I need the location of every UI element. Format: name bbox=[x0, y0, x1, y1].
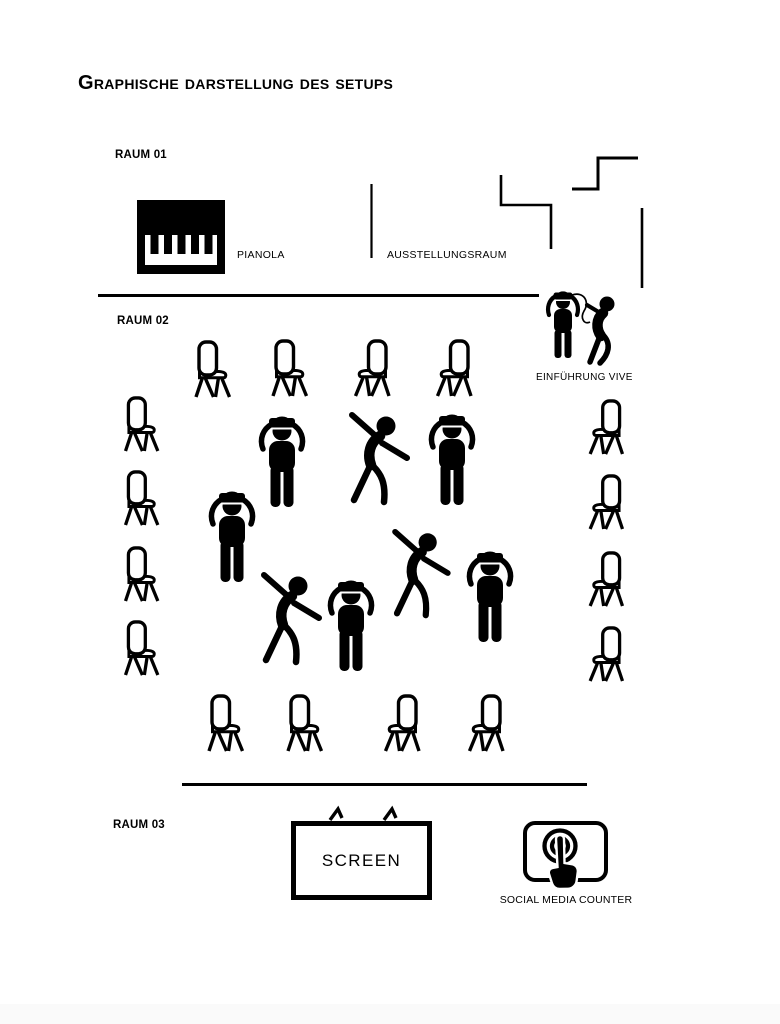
screen-label: SCREEN bbox=[322, 851, 401, 871]
chair-icon bbox=[586, 551, 630, 607]
setup-diagram-page: Graphische Darstellung des Setups RAUM 0… bbox=[0, 0, 780, 1024]
dancer-icon bbox=[253, 571, 327, 667]
pianola-label: PIANOLA bbox=[237, 249, 285, 261]
pianola-icon bbox=[137, 200, 225, 274]
chair-icon bbox=[586, 399, 630, 455]
vr-user-icon bbox=[200, 491, 264, 583]
room-label-raum-01: RAUM 01 bbox=[115, 149, 167, 161]
vr-user-icon bbox=[319, 580, 383, 672]
chair-icon bbox=[281, 694, 325, 752]
ausstellungsraum-label: AUSSTELLUNGSRAUM bbox=[387, 249, 507, 261]
exhibition-wall-lines bbox=[360, 150, 660, 300]
chair-icon bbox=[189, 340, 233, 398]
chair-icon bbox=[118, 546, 162, 602]
tv-antenna-marks bbox=[322, 805, 406, 822]
chair-icon bbox=[202, 694, 246, 752]
social-media-counter-label: SOCIAL MEDIA COUNTER bbox=[490, 894, 642, 906]
chair-icon bbox=[266, 339, 310, 397]
chair-icon bbox=[352, 339, 396, 397]
chair-icon bbox=[434, 339, 478, 397]
chair-icon bbox=[382, 694, 426, 752]
chair-icon bbox=[118, 470, 162, 526]
vr-user-icon bbox=[458, 551, 522, 643]
chair-icon bbox=[586, 474, 630, 530]
footer-band bbox=[0, 1004, 780, 1024]
vive-introduction-icon bbox=[543, 291, 631, 371]
dancer-icon bbox=[341, 411, 415, 507]
touch-tap-hand-icon bbox=[527, 824, 605, 900]
divider-raum-02-03 bbox=[182, 783, 587, 786]
screen-box: SCREEN bbox=[291, 821, 432, 900]
room-label-raum-02: RAUM 02 bbox=[117, 315, 169, 327]
room-label-raum-03: RAUM 03 bbox=[113, 819, 165, 831]
vive-introduction-label: EINFÜHRUNG VIVE bbox=[536, 372, 633, 383]
chair-icon bbox=[118, 620, 162, 676]
chair-icon bbox=[586, 626, 630, 682]
divider-raum-01-02 bbox=[98, 294, 539, 297]
vr-user-icon bbox=[420, 414, 484, 506]
chair-icon bbox=[466, 694, 510, 752]
page-title: Graphische Darstellung des Setups bbox=[78, 72, 393, 95]
chair-icon bbox=[118, 396, 162, 452]
dancer-icon bbox=[383, 528, 457, 620]
